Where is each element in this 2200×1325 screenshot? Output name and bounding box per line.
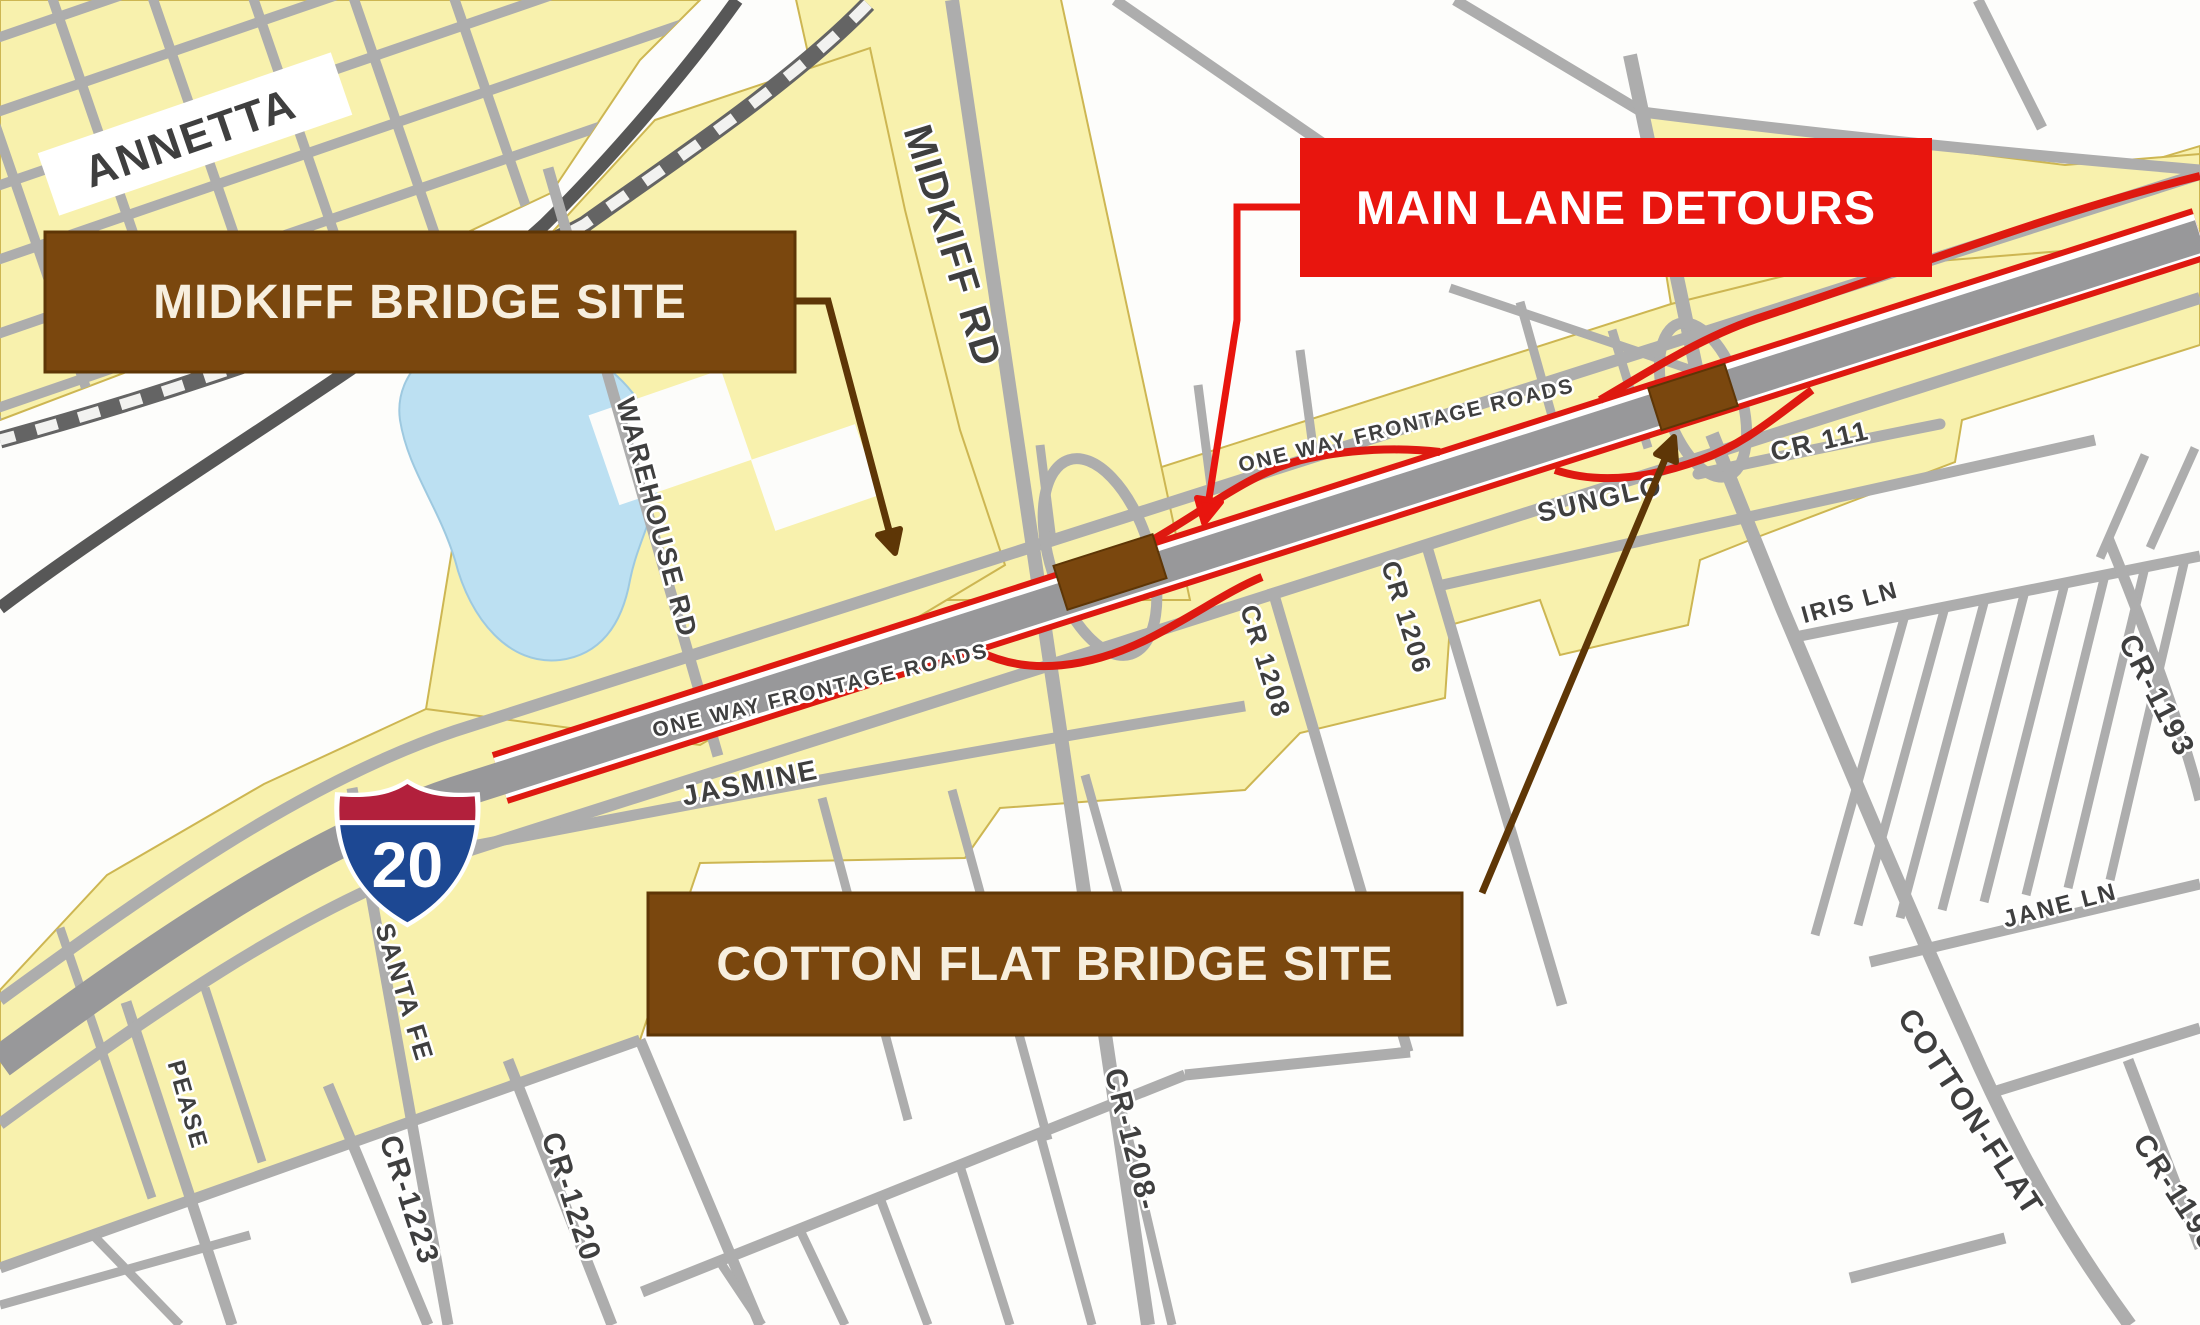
detour-map: ANNETTA MIDKIFF RD WAREHOUSE RD ONE WAY … (0, 0, 2200, 1325)
cotton-flat-bridge-site-banner-text: COTTON FLAT BRIDGE SITE (716, 938, 1393, 991)
map-canvas: ANNETTA MIDKIFF RD WAREHOUSE RD ONE WAY … (0, 0, 2200, 1325)
midkiff-bridge-site-banner-text: MIDKIFF BRIDGE SITE (153, 276, 687, 329)
shield-route-number: 20 (372, 829, 444, 901)
main-lane-detours-banner-text: MAIN LANE DETOURS (1356, 181, 1876, 234)
